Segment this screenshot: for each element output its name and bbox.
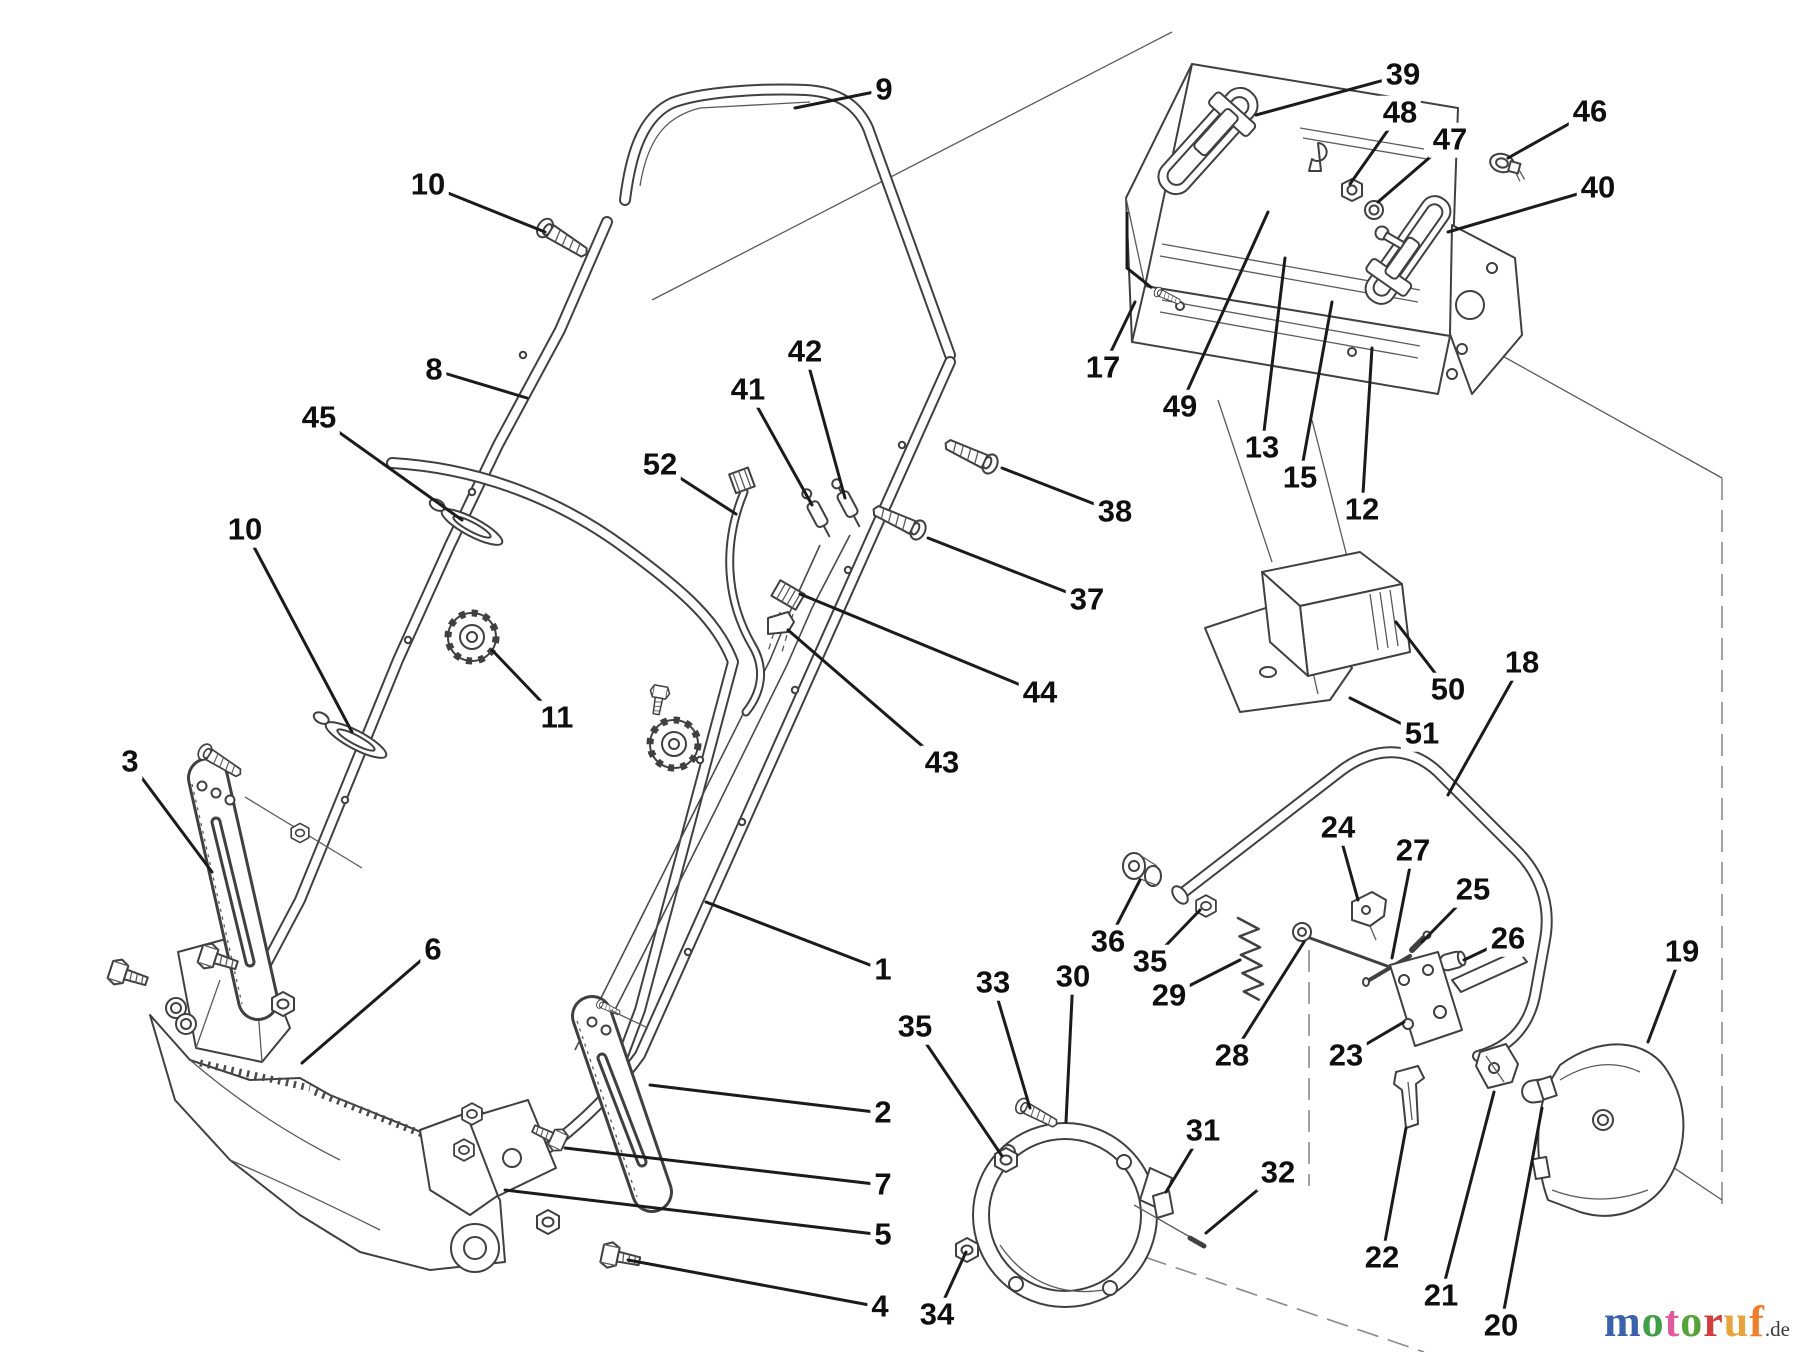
callout-label: 21: [1420, 1279, 1462, 1314]
callout-label: 4: [867, 1290, 892, 1325]
callout-label: 25: [1452, 873, 1494, 908]
leader-line: [706, 902, 883, 970]
callout-label: 8: [421, 353, 446, 388]
callout-label: 31: [1182, 1114, 1224, 1149]
leader-line: [302, 950, 433, 1063]
leader-line: [788, 630, 942, 763]
callout-label: 50: [1427, 673, 1469, 708]
callout-label: 42: [784, 335, 826, 370]
battery-box: [1205, 552, 1410, 712]
parts-diagram-page: motoruf.de 12345678910101112131517181920…: [0, 0, 1800, 1352]
callout-label: 24: [1317, 811, 1359, 846]
logo-letter: r: [1703, 1297, 1724, 1346]
callout-label: 51: [1401, 717, 1443, 752]
upper-handle-loop: [625, 90, 950, 355]
callout-label: 32: [1257, 1156, 1299, 1191]
callout-label: 26: [1487, 922, 1529, 957]
control-cables: [575, 477, 865, 1055]
callout-label: 29: [1148, 979, 1190, 1014]
screw-38: [941, 434, 1000, 476]
callout-label: 33: [972, 966, 1014, 1001]
leader-line: [800, 594, 1040, 693]
callout-label: 18: [1501, 646, 1543, 681]
callout-label: 39: [1382, 58, 1424, 93]
logo-letter: u: [1724, 1297, 1749, 1346]
leader-line: [993, 983, 1030, 1108]
callout-label: 40: [1577, 171, 1619, 206]
left-handle-tube: [255, 222, 607, 985]
callout-label: 46: [1569, 95, 1611, 130]
leader-line: [915, 1027, 1002, 1156]
callout-label: 43: [921, 746, 963, 781]
leader-line: [805, 352, 845, 498]
callout-label: 6: [420, 933, 445, 968]
leader-line: [1448, 188, 1598, 232]
callout-label: 35: [1129, 945, 1171, 980]
mower-deck: [150, 1015, 556, 1272]
callout-label: 9: [871, 73, 896, 108]
logo-letter: t: [1665, 1297, 1681, 1346]
handle-knob-right: [650, 720, 698, 768]
callout-label: 44: [1019, 676, 1061, 711]
callout-label: 37: [1066, 583, 1108, 618]
callout-label: 17: [1082, 351, 1124, 386]
carriage-screw-top: [534, 216, 592, 263]
site-logo[interactable]: motoruf.de: [1604, 1300, 1790, 1344]
callout-label: 3: [117, 745, 142, 780]
leader-line: [650, 1085, 883, 1113]
callout-label: 15: [1279, 461, 1321, 496]
choke-cap: [1487, 151, 1529, 182]
callout-label: 48: [1379, 96, 1421, 131]
logo-letter: o: [1680, 1297, 1703, 1346]
callout-label: 52: [639, 448, 681, 483]
callout-label: 23: [1325, 1039, 1367, 1074]
logo-letter: f: [1749, 1297, 1765, 1346]
callout-label: 5: [870, 1218, 895, 1253]
leader-line: [434, 370, 527, 398]
screw-33: [1013, 1096, 1060, 1131]
callout-label: 2: [870, 1096, 895, 1131]
cable-end-41: [799, 487, 834, 539]
leader-line: [1441, 1092, 1494, 1296]
callout-label: 28: [1211, 1039, 1253, 1074]
leader-line: [628, 1260, 880, 1307]
leader-line: [245, 530, 352, 732]
leader-line: [505, 1190, 883, 1235]
nut-34: [956, 1238, 978, 1262]
cable-end-42: [829, 477, 864, 529]
callout-label: 45: [298, 401, 340, 436]
callout-label: 12: [1341, 493, 1383, 528]
leader-line: [1066, 977, 1073, 1122]
callout-label: 41: [727, 373, 769, 408]
control-panel: [1126, 64, 1529, 394]
callout-label: 47: [1429, 123, 1471, 158]
leader-line: [565, 1148, 883, 1185]
bolt-4: [599, 1241, 642, 1274]
leader-line: [1501, 1108, 1542, 1326]
callout-label: 7: [870, 1168, 895, 1203]
callout-label: 22: [1361, 1241, 1403, 1276]
callout-label: 20: [1480, 1309, 1522, 1344]
logo-letters: motoruf: [1604, 1297, 1765, 1346]
callout-label: 30: [1052, 960, 1094, 995]
callout-label: 19: [1661, 935, 1703, 970]
callout-label: 10: [407, 168, 449, 203]
logo-suffix: .de: [1765, 1317, 1790, 1341]
callout-label: 27: [1392, 834, 1434, 869]
callout-label: 34: [916, 1298, 958, 1333]
callout-label: 36: [1087, 925, 1129, 960]
callout-label: 10: [224, 513, 266, 548]
leader-line: [1382, 1128, 1406, 1258]
handle-knob-left: [448, 613, 496, 661]
callout-label: 49: [1159, 390, 1201, 425]
support-strap-right: [577, 999, 652, 1197]
side-cover: [1532, 1044, 1683, 1215]
logo-letter: m: [1604, 1297, 1642, 1346]
callout-label: 1: [870, 953, 895, 988]
callout-label: 11: [537, 701, 578, 736]
logo-letter: o: [1642, 1297, 1665, 1346]
callout-label: 13: [1241, 431, 1283, 466]
callout-label: 38: [1094, 495, 1136, 530]
leader-line: [928, 538, 1087, 600]
callout-label: 35: [894, 1010, 936, 1045]
